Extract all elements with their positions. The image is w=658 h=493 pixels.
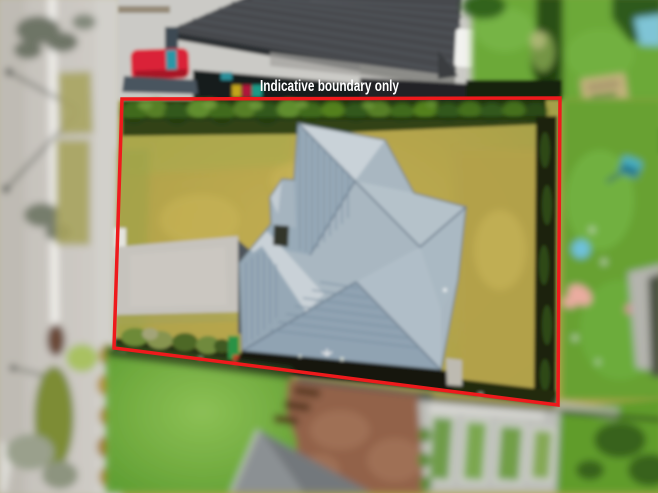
- svg-text:Indicative boundary only: Indicative boundary only: [260, 78, 399, 95]
